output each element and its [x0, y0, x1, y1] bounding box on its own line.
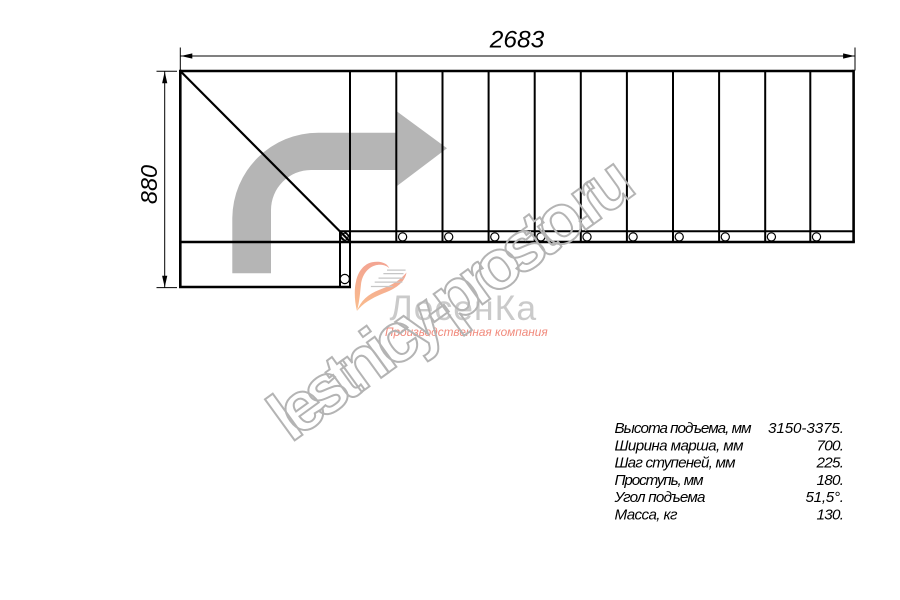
svg-text:880: 880 — [136, 165, 162, 204]
svg-text:3150-3375.: 3150-3375. — [768, 420, 844, 437]
svg-text:Масса, кг: Масса, кг — [615, 506, 679, 523]
svg-text:225.: 225. — [816, 455, 845, 472]
svg-text:Шаг ступеней, мм: Шаг ступеней, мм — [615, 455, 737, 472]
svg-text:Угол подъема: Угол подъема — [614, 489, 706, 506]
svg-text:130.: 130. — [817, 506, 845, 523]
svg-text:Высота подъема, мм: Высота подъема, мм — [615, 420, 753, 437]
svg-text:Проступь, мм: Проступь, мм — [615, 472, 705, 489]
svg-text:51,5°.: 51,5°. — [806, 489, 845, 506]
svg-text:180.: 180. — [817, 472, 845, 489]
svg-text:700.: 700. — [817, 437, 845, 454]
svg-text:2683: 2683 — [489, 27, 545, 54]
svg-text:Ширина марша, мм: Ширина марша, мм — [615, 437, 745, 454]
